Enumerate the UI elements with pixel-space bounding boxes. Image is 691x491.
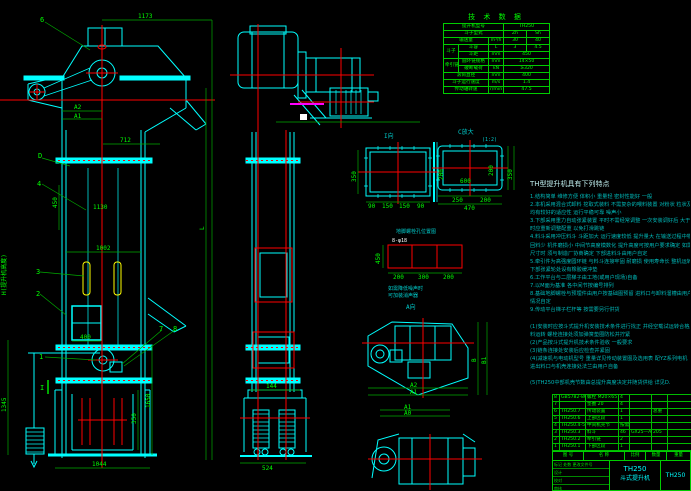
bom-cell-no: 2 [553,437,560,444]
bom-cell-weight [652,395,668,402]
tech-cell: 14×50 [504,59,550,66]
title-block-header-scale: 比例 [625,452,646,460]
dim-i-90a: 90 [368,203,376,210]
bom-cell-qty: 1 [619,444,630,451]
parts-list-table[interactable]: 8 GB5782-86 螺栓 M20×65 4 7 垫圈 20 4 [552,394,691,451]
side-elevation-view[interactable] [238,26,378,456]
dim-450: 450 [52,197,59,208]
feature-note-line: 9.传动平台梯子栏杆等 按需要另行供货 [530,306,690,314]
dim-c-200b: 200 [480,197,491,204]
bom-cell-weight: 总重 [652,409,668,416]
tech-cell: 提升机型号 [444,24,504,31]
anchor-dimension-lines [383,245,462,273]
feature-note-line: (2)产品按斗式提升机技术条件验收 一般要求 [530,339,690,347]
product-model: TH250 [610,465,660,473]
bom-cell-code: GB5782-86 [560,395,586,402]
feature-note-line: (4)减速机与电动机型号 重量详见传动装置图及选用表 配YZ系列电机 [530,355,690,363]
dim-plan-b: B [471,358,478,362]
feature-note-line: 6.工作平台与二层梯子由工地(或用户现场)自备 [530,274,690,282]
anchor-bolt-detail[interactable] [388,245,462,268]
plan-boot-dimension-lines [368,322,487,416]
feature-note-line: 3.下部采用重力自动张紧装置 平时不需经常调整 一次安装调好后 大于张紧行程 [530,217,690,225]
dim-1650: 1650 [145,393,152,408]
tech-cell: 圆环链规格 [459,59,489,66]
bom-cell-code [560,402,586,409]
view-label-i: I向 [384,132,394,140]
title-block-header-name: 名 称 [584,452,625,460]
tech-cell: 47.5 [504,87,550,94]
tech-cell: 牵引链 [444,59,459,73]
title-block-header-code: 图 号 [553,452,584,460]
tech-cell: 斗距 [459,52,489,59]
bom-cell-weight [652,423,668,430]
title-block-signature-grid: 标记 处数 更改文件号 设计 校对 审核 [553,461,610,491]
view-label-a: A向 [406,303,416,311]
tech-cell: 40 [527,38,550,45]
bom-cell-no: 8 [553,395,560,402]
bom-cell-no: 7 [553,402,560,409]
view-label-c-scale: (1:2) [482,137,497,143]
bom-cell-note [668,423,691,430]
bom-cell-no: 3 [553,430,560,437]
bom-cell-qty: 1 [619,416,630,423]
plan-head-centerlines [368,434,482,490]
feature-note-line: 2.本机采用混合式卸料 挖取式装料 不需复杂的喂料装置 对粉状 粒状及小块物料 [530,201,690,209]
tech-cell: r/min [489,87,504,94]
dim-a1: A1 [74,113,82,120]
tech-cell: 传动轴转速 [444,87,489,94]
bom-cell-code: TH250.3 [560,430,586,437]
feature-note-line: 下部张紧轮处设有橡胶缓冲垫 [530,266,690,274]
bom-cell-material [630,416,652,423]
dim-i-200: 200 [438,169,445,180]
tech-cell: 输送量 [444,38,489,45]
dim-c-350: 350 [507,169,514,180]
title-block-sig-design: 设计 [553,469,609,477]
title-block: 图 号 名 称 比例 数量 重量 标记 处数 更改文件号 设计 校对 审核 TH… [552,451,691,491]
tech-cell: m³/h [489,38,504,45]
feature-note-line: 时应重新调整配重 以免打滑跳链 [530,225,690,233]
bom-cell-qty: 4 [619,395,630,402]
feature-notes-title: TH型提升机具有下列特点 [530,179,690,189]
parts-list-row[interactable]: 7 垫圈 20 4 [553,402,691,409]
bom-cell-weight: 205 [652,430,668,437]
bom-cell-weight [652,444,668,451]
view-label-c: C放大 [458,128,474,136]
feature-note-line: 情况自定 [530,298,690,306]
bom-cell-material [630,402,652,409]
dim-1173: 1173 [138,13,153,20]
tech-cell: Sh [527,31,550,38]
bom-cell-note [668,395,691,402]
dim-i-350: 350 [351,171,358,182]
bom-cell-material: GX25—A [630,430,652,437]
bom-cell-name: 垫圈 20 [586,402,619,409]
tech-cell: mm [489,59,504,66]
parts-list-row[interactable]: 5 TH250.6 上部区段 1 [553,416,691,423]
bom-cell-material [630,437,652,444]
bom-cell-code: TH250.1 [560,444,586,451]
bom-cell-qty: 按需 [619,423,630,430]
main-elevation-view[interactable] [24,28,206,467]
tech-cell: 斗容 [459,45,489,52]
cad-drawing-canvas: 1173 A2 A1 712 450 1130 1002 400 1044 13… [0,0,691,491]
bom-cell-material [630,395,652,402]
bom-cell-no: 5 [553,416,560,423]
parts-list-row[interactable]: 8 GB5782-86 螺栓 M20×65 4 [553,395,691,402]
bom-cell-name: 下部区段 [586,444,619,451]
dimension-texts: 1173 A2 A1 712 450 1130 1002 400 1044 13… [0,13,514,472]
tech-cell: 30 [504,38,527,45]
bom-cell-name: 螺栓 M20×65 [586,395,619,402]
feature-note-line: 料运转 螺栓连接处须加弹簧垫圈防松并拧紧 [530,331,690,339]
dim-a2: A2 [74,104,82,111]
tech-cell: 斗子运行速度 [444,80,489,87]
part-label-6: 6 [40,16,44,24]
section-c-dimension-lines [438,146,514,204]
tech-cell: 3 [504,45,527,52]
dim-H: H(提升机高度) [0,254,8,295]
bom-cell-note [668,416,691,423]
dim-L: L [199,226,206,230]
bom-cell-weight [652,437,668,444]
feature-note-line: (3)链条连接处安装后应检查并紧固 [530,347,690,355]
bom-cell-code: TH250.2 [560,437,586,444]
dim-1345: 1345 [1,397,8,412]
dim-an-300: 300 [418,274,429,281]
parts-list-row[interactable]: 1 TH250.1 下部区段 1 [553,444,691,451]
main-dimension-lines [8,20,212,468]
dim-524: 524 [262,465,273,472]
bom-cell-qty: 2 [619,437,630,444]
parts-list-row[interactable]: 4 TH250.4-5 中间机壳节 按需 [553,423,691,430]
product-name: 斗式提升机 [610,473,660,482]
tech-cell: mm [489,73,504,80]
feature-note-line: 均有较好的适应性 运行平稳可靠 噪声小 [530,209,690,217]
part-label-2: 2 [36,290,40,298]
bom-cell-qty: 4 [619,402,630,409]
dim-c-470: 470 [464,205,475,212]
dim-144: 144 [266,383,277,390]
anchor-sub-note-1: 如需降低噪声时 [388,285,423,292]
dim-an-450: 450 [375,253,382,264]
feature-note-line: 尺寸时 须与制造厂协商确定 下部进料斗由用户自定 [530,250,690,258]
plan-view-boot[interactable] [368,322,468,395]
title-block-sig-check: 校对 [553,477,609,485]
bom-cell-material [630,409,652,416]
feature-note-line: 回料少 机件磨损小 中间节高度模数化 提升高度可按用户要求确定 如需更改 [530,242,690,250]
dim-1130: 1130 [93,204,108,211]
title-block-sig-audit: 审核 [553,485,609,491]
feature-note-line: 5.牵引件为高强度圆环链 与料斗连接牢固 耐磨损 使用寿命长 整机运转噪声小 [530,258,690,266]
anchor-sub-note-2: 可加装消声器 [388,292,418,299]
tech-cell: kN [489,66,504,73]
bom-cell-note [668,402,691,409]
bom-cell-weight [652,416,668,423]
dim-i-90b: 90 [417,203,425,210]
bom-cell-weight [652,402,668,409]
anchor-detail-title: 地脚螺栓孔位置图 [396,228,436,235]
bom-cell-name: 上部区段 [586,416,619,423]
feature-note-line: 7.以M面为基准 各中间节按编号排列 [530,282,690,290]
tech-cell: 滚筒直径 [444,73,489,80]
bom-cell-no: 1 [553,444,560,451]
parts-list-row[interactable]: 3 TH250.3 料斗 46 GX25—A 205 [553,430,691,437]
technical-data-table[interactable]: 技 术 数 据 提升机型号TH250 斗子型式ZhSh 输送量m³/h3040 … [443,12,549,94]
bom-cell-no: 6 [553,409,560,416]
bom-cell-name: 料斗 [586,430,619,437]
bom-cell-name: 牵引链 [586,437,619,444]
dim-c-250: 250 [452,197,463,204]
dim-c-600: 600 [460,178,471,185]
bom-cell-qty: 46 [619,430,630,437]
tech-cell: ≥320 [504,66,550,73]
dim-i-150b: 150 [399,203,410,210]
dim-plan-a0: A0 [404,410,412,417]
dim-712: 712 [120,137,131,144]
tech-cell: 斗子型式 [444,31,504,38]
title-block-header-qty: 数量 [646,452,667,460]
feature-note-line: 4.料斗采用冲压料斗 斗距加大 运行速度较低 提升量大 在输送过程中物料无洒落 [530,233,690,241]
bom-cell-note [668,444,691,451]
bom-cell-no: 4 [553,423,560,430]
title-block-product: TH250 斗式提升机 [610,461,661,491]
tech-cell: 400 [504,73,550,80]
feature-notes-lines: 1.结构简单 维修方便 体积小 重量轻 密封性能好 一般2.本机采用混合式卸料 … [530,193,690,387]
anchor-bolt-note: 8-φ18 [392,238,407,244]
bom-cell-name: 中间机壳节 [586,423,619,430]
tech-cell: m/s [489,80,504,87]
title-block-sig-strip: 标记 处数 更改文件号 [553,461,609,469]
section-i-dimension-lines [358,150,430,202]
drawing-number: TH250 [661,461,690,491]
tech-cell: 斗子 [444,45,459,59]
dim-400: 400 [80,334,91,341]
bom-cell-code: TH250.4-5 [560,423,586,430]
feature-note-line: (1)安装时应按斗式提升机安装技术条件进行找正 并经空载试运转合格后方可投 [530,323,690,331]
bom-cell-code: TH250.6 [560,416,586,423]
dim-an-200a: 200 [393,274,404,281]
part-label-4: 4 [37,180,41,188]
dim-i-150a: 150 [382,203,393,210]
tech-cell: L [489,45,504,52]
part-label-3: 3 [36,268,40,276]
bom-cell-material [630,444,652,451]
feature-note-line [530,314,690,322]
bom-cell-qty: 1 [619,409,630,416]
dim-c-200: 200 [488,165,495,176]
dim-plan-a2: A2 [410,382,418,389]
tech-cell: 破断载荷 [459,66,489,73]
feature-notes-block: TH型提升机具有下列特点 1.结构简单 维修方便 体积小 重量轻 密封性能好 一… [530,179,690,391]
bom-cell-name: 传动装置 [586,409,619,416]
feature-note-line: 8.基础地脚螺栓与预埋件由用户按基础图预留 进料口与卸料溜槽由用户根据现场 [530,290,690,298]
dim-1044: 1044 [92,461,107,468]
feature-note-line: (5)TH250中部机壳节数由总提升高度决定并随货供给 详见D. [530,379,690,387]
view-label-d: D [38,152,42,160]
part-label-8: 8 [173,325,177,333]
parts-list-row[interactable]: 2 TH250.2 牵引链 2 [553,437,691,444]
bom-cell-code: TH250.7 [560,409,586,416]
parts-list-row[interactable]: 6 TH250.7 传动装置 1 总重 [553,409,691,416]
dim-350-boot: 350 [131,413,138,424]
tech-cell: 4.5 [527,45,550,52]
bom-cell-material [630,423,652,430]
title-block-header-weight: 重量 [667,452,690,460]
tech-table-title: 技 术 数 据 [443,12,549,22]
feature-note-line [530,371,690,379]
feature-note-line: 1.结构简单 维修方便 体积小 重量轻 密封性能好 一般 [530,193,690,201]
section-mark-i: I [40,384,44,392]
dim-an-200b: 200 [443,274,454,281]
bom-cell-note [668,437,691,444]
feature-note-line: 进出料口与机壳连接处法兰由用户自备 [530,363,690,371]
dim-plan-b1: B1 [481,356,488,364]
bom-cell-note [668,409,691,416]
tech-cell: 1.4 [504,80,550,87]
dim-1002: 1002 [96,245,111,252]
dim-plan-a1: A1 [410,389,418,396]
tech-cell: mm [489,52,504,59]
part-label-7: 7 [159,325,163,333]
section-c-centerlines [432,140,508,196]
tech-cell: Zh [504,31,527,38]
bom-cell-note [668,430,691,437]
tech-cell: 450 [504,52,550,59]
part-label-1: 1 [39,353,43,361]
tech-cell: TH250 [504,24,550,31]
